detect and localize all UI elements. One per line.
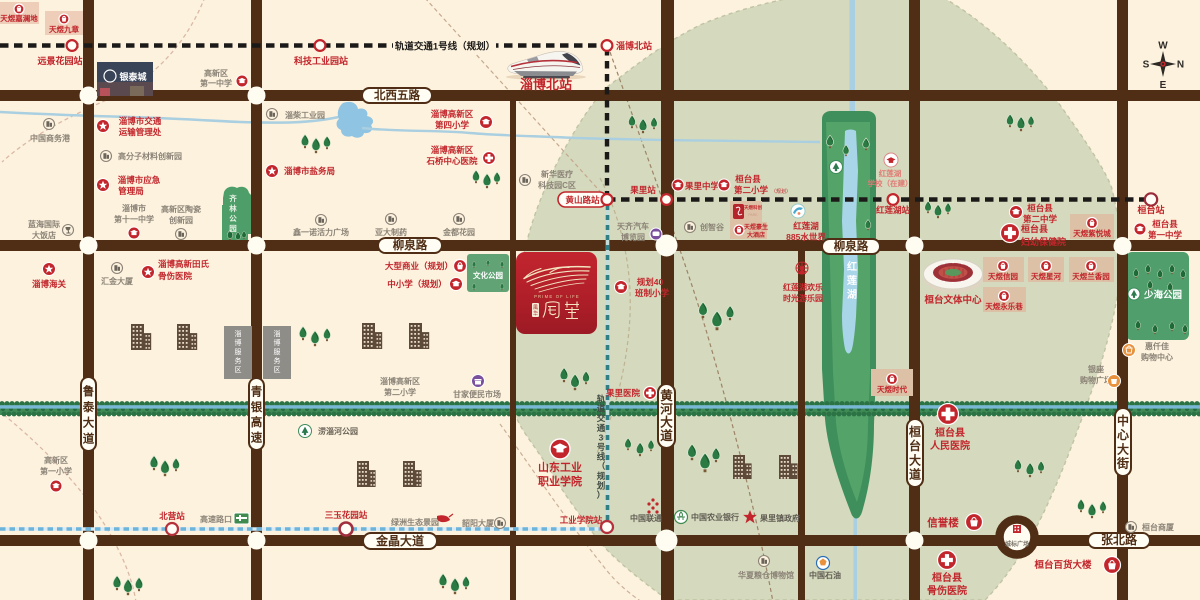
svg-text:速: 速 <box>251 430 263 444</box>
svg-text:淄博市: 淄博市 <box>122 203 146 213</box>
svg-text:划: 划 <box>597 480 606 490</box>
svg-text:黄: 黄 <box>660 388 673 403</box>
svg-text:红莲湖: 红莲湖 <box>879 168 902 178</box>
svg-text:高新区: 高新区 <box>44 455 68 465</box>
svg-text:淄博北站: 淄博北站 <box>520 77 572 92</box>
svg-text:文化公园: 文化公园 <box>473 270 503 280</box>
svg-text:博: 博 <box>274 338 281 347</box>
svg-text:桓台文体中心: 桓台文体中心 <box>924 294 982 306</box>
svg-text:）: ） <box>597 490 606 500</box>
svg-text:道: 道 <box>909 467 921 482</box>
svg-text:交: 交 <box>597 413 606 423</box>
svg-text:第二小学: 第二小学 <box>734 185 769 195</box>
svg-text:第二小学: 第二小学 <box>384 387 416 397</box>
svg-text:轨道交通1号线（规划）: 轨道交通1号线（规划） <box>395 41 495 53</box>
svg-text:高分子材料创新园: 高分子材料创新园 <box>118 151 182 161</box>
svg-text:博: 博 <box>235 338 242 347</box>
svg-text:桓台商厦: 桓台商厦 <box>1142 522 1175 532</box>
svg-text:天煜紫悦城: 天煜紫悦城 <box>1073 228 1111 238</box>
svg-text:中国农业银行: 中国农业银行 <box>691 512 739 522</box>
svg-text:学校（在建）: 学校（在建） <box>868 178 913 188</box>
svg-text:大酒店: 大酒店 <box>747 231 765 239</box>
svg-text:三玉花园站: 三玉花园站 <box>325 510 368 520</box>
svg-text:柳泉路: 柳泉路 <box>834 239 869 253</box>
svg-text:高新区陶瓷: 高新区陶瓷 <box>161 204 202 214</box>
svg-text:泰: 泰 <box>82 400 95 414</box>
svg-text:桓台县: 桓台县 <box>1152 219 1178 229</box>
svg-text:科技工业园站: 科技工业园站 <box>294 55 348 66</box>
svg-text:第一中学: 第一中学 <box>200 78 232 88</box>
svg-text:淄博高新区: 淄博高新区 <box>431 109 474 119</box>
svg-text:规划40: 规划40 <box>637 277 664 287</box>
svg-text:天煜时代: 天煜时代 <box>877 384 907 394</box>
svg-text:骨伤医院: 骨伤医院 <box>927 584 967 597</box>
svg-text:石桥中心医院: 石桥中心医院 <box>425 156 478 166</box>
svg-text:轨: 轨 <box>597 394 606 404</box>
svg-text:职业学院: 职业学院 <box>538 474 582 488</box>
svg-text:天煜嘉澜地: 天煜嘉澜地 <box>0 13 38 23</box>
svg-text:大: 大 <box>1117 441 1129 456</box>
svg-text:淄博市盐务局: 淄博市盐务局 <box>284 166 335 176</box>
svg-text:淄柴工业园: 淄柴工业园 <box>285 110 325 120</box>
svg-text:桓台县: 桓台县 <box>935 426 965 439</box>
svg-text:中国联通: 中国联通 <box>630 513 662 523</box>
svg-text:高速路口: 高速路口 <box>200 514 232 524</box>
svg-text:园: 园 <box>229 224 237 233</box>
svg-text:3: 3 <box>599 432 604 442</box>
svg-text:金都花园: 金都花园 <box>442 227 475 237</box>
svg-text:务: 务 <box>274 356 281 365</box>
svg-text:天煜科创: 天煜科创 <box>744 204 762 211</box>
svg-text:第二中学: 第二中学 <box>1023 214 1058 224</box>
svg-text:创新园: 创新园 <box>168 215 193 225</box>
svg-text:天煜兰香园: 天煜兰香园 <box>1072 271 1110 281</box>
svg-text:蓝海国际: 蓝海国际 <box>28 219 60 229</box>
svg-text:桓台县: 桓台县 <box>735 174 761 184</box>
svg-text:第十一中学: 第十一中学 <box>114 214 154 224</box>
svg-text:果里医院: 果里医院 <box>605 388 641 398</box>
svg-text:博览园: 博览园 <box>621 232 645 242</box>
svg-text:柳泉路: 柳泉路 <box>393 238 428 252</box>
svg-text:道: 道 <box>83 431 95 445</box>
svg-text:大: 大 <box>909 452 921 467</box>
svg-text:淄博市交通: 淄博市交通 <box>119 116 162 126</box>
svg-text:淄: 淄 <box>235 329 242 338</box>
svg-text:桓台站: 桓台站 <box>1137 204 1164 215</box>
svg-text:淄博北站: 淄博北站 <box>616 40 652 51</box>
svg-text:齐: 齐 <box>229 193 237 203</box>
svg-text:涝淄河公园: 涝淄河公园 <box>318 426 358 436</box>
svg-text:银座: 银座 <box>1087 364 1104 374</box>
svg-text:天煜信园: 天煜信园 <box>988 271 1018 281</box>
svg-text:妇幼保健院: 妇幼保健院 <box>1020 236 1066 247</box>
svg-text:桓台县: 桓台县 <box>1021 223 1048 234</box>
svg-text:甘家便民市场: 甘家便民市场 <box>453 389 501 399</box>
svg-text:红莲湖站: 红莲湖站 <box>876 205 911 215</box>
svg-text:高新区: 高新区 <box>204 68 228 78</box>
svg-text:公: 公 <box>229 214 237 223</box>
svg-text:骨伤医院: 骨伤医院 <box>158 271 193 281</box>
svg-text:大型商业（规划）: 大型商业（规划） <box>385 261 453 271</box>
svg-text:莲: 莲 <box>847 274 857 287</box>
svg-text:鑫一诺活力广场: 鑫一诺活力广场 <box>292 227 349 237</box>
svg-text:运输管理处: 运输管理处 <box>119 127 162 137</box>
svg-text:林: 林 <box>229 203 237 213</box>
svg-text:山东工业: 山东工业 <box>538 460 582 474</box>
svg-text:人民医院: 人民医院 <box>930 439 970 452</box>
svg-text:湖: 湖 <box>847 288 857 301</box>
svg-text:惠仟佳: 惠仟佳 <box>1145 341 1169 351</box>
svg-text:PRIME OF LIFE: PRIME OF LIFE <box>534 294 580 299</box>
svg-text:购物中心: 购物中心 <box>1141 352 1173 362</box>
svg-text:桓台县: 桓台县 <box>1027 203 1053 213</box>
svg-text:服: 服 <box>274 348 281 356</box>
svg-text:E: E <box>1160 80 1167 91</box>
svg-text:青: 青 <box>251 385 263 399</box>
svg-text:天煜星河: 天煜星河 <box>1031 271 1061 281</box>
svg-text:亚大制药: 亚大制药 <box>375 227 407 237</box>
svg-text:第一小学: 第一小学 <box>40 466 72 476</box>
svg-text:天煜永乐巷: 天煜永乐巷 <box>985 301 1023 311</box>
svg-text:中国石油: 中国石油 <box>809 570 841 580</box>
svg-text:第四小学: 第四小学 <box>435 120 470 130</box>
svg-text:时光游乐园: 时光游乐园 <box>783 293 823 303</box>
svg-text:管理局: 管理局 <box>118 186 144 196</box>
svg-text:中国商务港: 中国商务港 <box>30 133 71 143</box>
svg-text:银泰城: 银泰城 <box>119 71 146 82</box>
svg-text:第一中学: 第一中学 <box>1148 230 1183 240</box>
svg-text:号: 号 <box>597 442 606 452</box>
svg-text:金晶大道: 金晶大道 <box>375 533 424 548</box>
svg-text:张北路: 张北路 <box>1101 532 1138 547</box>
svg-text:淄: 淄 <box>274 329 281 338</box>
svg-text:黄山路站: 黄山路站 <box>565 195 600 205</box>
svg-text:大饭店: 大饭店 <box>32 230 56 240</box>
svg-text:淄博高新区: 淄博高新区 <box>380 376 420 386</box>
svg-text:淄博市应急: 淄博市应急 <box>118 175 161 185</box>
svg-text:北营站: 北营站 <box>159 511 185 521</box>
svg-text:淄博高新田氏: 淄博高新田氏 <box>158 259 210 269</box>
svg-text:银: 银 <box>251 400 263 414</box>
svg-text:道: 道 <box>660 428 673 443</box>
svg-text:汇金大厦: 汇金大厦 <box>101 276 134 286</box>
svg-text:华夏粮仓博物馆: 华夏粮仓博物馆 <box>738 570 794 580</box>
svg-text:少海公园: 少海公园 <box>1143 289 1182 301</box>
svg-text:鲁: 鲁 <box>83 384 95 398</box>
svg-text:服: 服 <box>235 348 242 356</box>
svg-text:心: 心 <box>1117 428 1129 442</box>
svg-text:N: N <box>1177 60 1184 71</box>
svg-text:街: 街 <box>1116 456 1129 471</box>
svg-text:淄博海关: 淄博海关 <box>32 279 67 289</box>
svg-text:果里镇政府: 果里镇政府 <box>759 513 800 523</box>
svg-text:PARK: PARK <box>748 213 758 217</box>
svg-text:规: 规 <box>597 471 606 481</box>
svg-text:果里站: 果里站 <box>629 185 656 195</box>
svg-text:果里中学: 果里中学 <box>684 181 720 191</box>
svg-text:桓台县: 桓台县 <box>932 571 962 584</box>
svg-text:S: S <box>1143 60 1150 71</box>
svg-text:天煜豪生: 天煜豪生 <box>744 223 768 231</box>
svg-text:淄博高新区: 淄博高新区 <box>431 145 474 155</box>
svg-text:红莲湖: 红莲湖 <box>793 221 819 231</box>
svg-text:中小学（规划）: 中小学（规划） <box>387 279 447 289</box>
svg-text:线: 线 <box>597 452 606 462</box>
svg-text:北西五路: 北西五路 <box>374 88 420 102</box>
svg-text:科技园C区: 科技园C区 <box>538 180 576 190</box>
svg-text:信誉楼: 信誉楼 <box>927 516 959 529</box>
svg-text:（规划）: （规划） <box>771 188 791 195</box>
svg-text:班制小学: 班制小学 <box>635 288 670 298</box>
svg-text:（: （ <box>597 461 606 471</box>
svg-text:红: 红 <box>847 260 857 273</box>
svg-text:城标广场: 城标广场 <box>1005 540 1029 548</box>
svg-text:高: 高 <box>251 415 263 429</box>
svg-text:务: 务 <box>235 356 242 365</box>
svg-text:远景花园站: 远景花园站 <box>37 55 82 66</box>
svg-text:桓台百货大楼: 桓台百货大楼 <box>1034 559 1092 571</box>
svg-text:区: 区 <box>235 366 242 374</box>
svg-text:创智谷: 创智谷 <box>699 222 725 232</box>
svg-text:河: 河 <box>660 401 673 416</box>
svg-text:大: 大 <box>83 416 95 430</box>
svg-text:W: W <box>1158 41 1168 52</box>
svg-text:天齐汽车: 天齐汽车 <box>617 221 649 231</box>
svg-text:中: 中 <box>1117 413 1129 428</box>
svg-text:韶阳大厦: 韶阳大厦 <box>462 518 495 528</box>
svg-text:桓: 桓 <box>909 424 921 439</box>
svg-text:台: 台 <box>909 438 921 453</box>
svg-text:区: 区 <box>274 366 281 374</box>
svg-text:新华医疗: 新华医疗 <box>541 169 573 179</box>
svg-text:道: 道 <box>597 404 606 414</box>
svg-text:绿洲生态景园: 绿洲生态景园 <box>391 517 439 527</box>
svg-text:大: 大 <box>660 415 673 430</box>
svg-text:天煜九章: 天煜九章 <box>49 24 79 34</box>
svg-text:工业学院站: 工业学院站 <box>560 515 603 525</box>
svg-text:通: 通 <box>597 423 606 433</box>
svg-text:红莲湖欢乐: 红莲湖欢乐 <box>783 282 823 292</box>
svg-text:华: 华 <box>533 310 538 317</box>
svg-text:885水世界: 885水世界 <box>786 232 826 242</box>
